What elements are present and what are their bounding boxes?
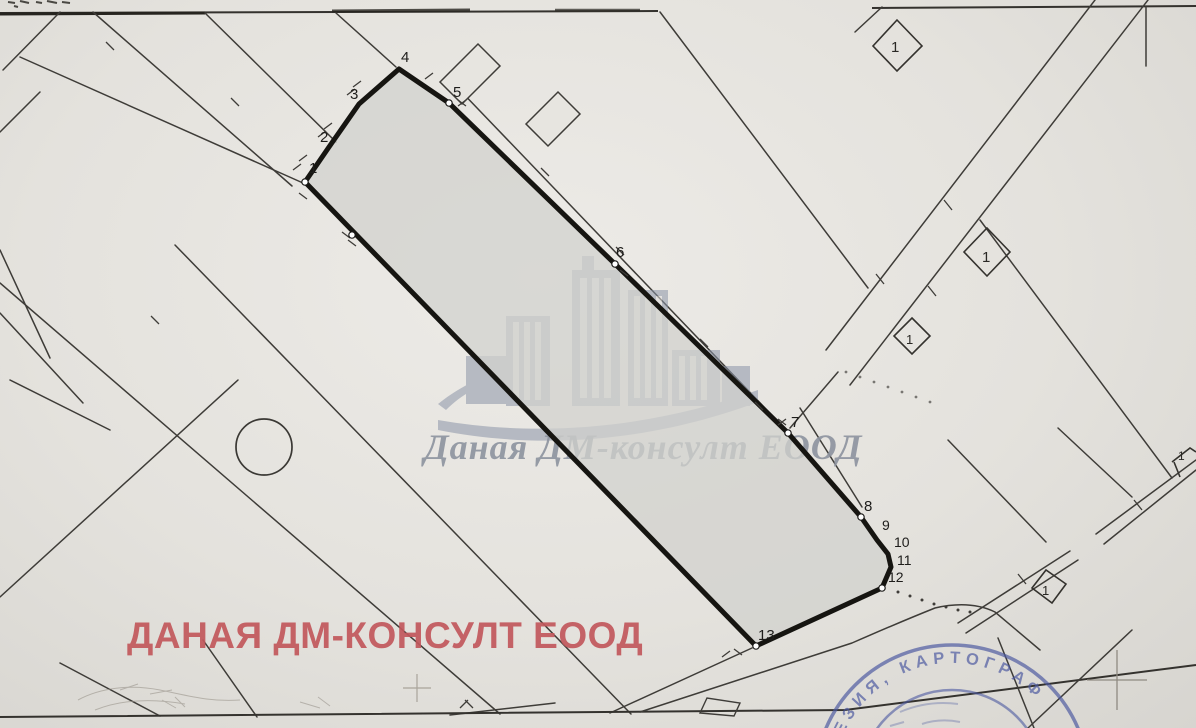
vertex-label-8: 8 [864, 498, 872, 515]
vertex-label-7: 7 [791, 414, 799, 431]
round-stamp: ЕЗИЯ, КАРТОГРАФ [815, 645, 1089, 728]
pencil-scribbles [78, 684, 330, 710]
vertex-label-13: 13 [758, 627, 775, 644]
building-symbols [873, 20, 1196, 603]
building-label-4: 1 [1042, 583, 1049, 598]
cadastral-map-scan: Даная ДМ-консулт ЕООД 1 2 3 4 5 6 7 8 9 … [0, 0, 1196, 728]
cropped-text-marks [8, 1, 70, 7]
parcel-boundary [305, 69, 891, 646]
vertex-label-3: 3 [350, 86, 358, 103]
building-label-3: 1 [906, 332, 913, 347]
vertex-label-4: 4 [401, 49, 409, 66]
survey-cross-icon [1087, 650, 1147, 710]
vertex-label-6: 6 [616, 244, 624, 261]
building-label-2: 1 [982, 249, 990, 266]
company-name-text: ДАНАЯ ДМ-КОНСУЛТ ЕООД [127, 615, 643, 656]
cadastral-sketch-svg: Даная ДМ-консулт ЕООД 1 2 3 4 5 6 7 8 9 … [0, 0, 1196, 728]
building-label-5: 1 [1178, 449, 1185, 463]
vertex-label-1: 1 [309, 160, 317, 177]
vertex-label-5: 5 [453, 84, 461, 101]
vertex-label-9: 9 [882, 517, 890, 533]
vertex-label-2: 2 [320, 129, 328, 146]
building-label-1: 1 [891, 39, 899, 56]
vertex-label-12: 12 [888, 569, 904, 585]
vertex-label-10: 10 [894, 534, 910, 550]
vertex-label-11: 11 [897, 552, 912, 568]
circle-feature [236, 419, 292, 475]
survey-cross-icon [403, 674, 431, 702]
building-footprint [700, 698, 740, 716]
